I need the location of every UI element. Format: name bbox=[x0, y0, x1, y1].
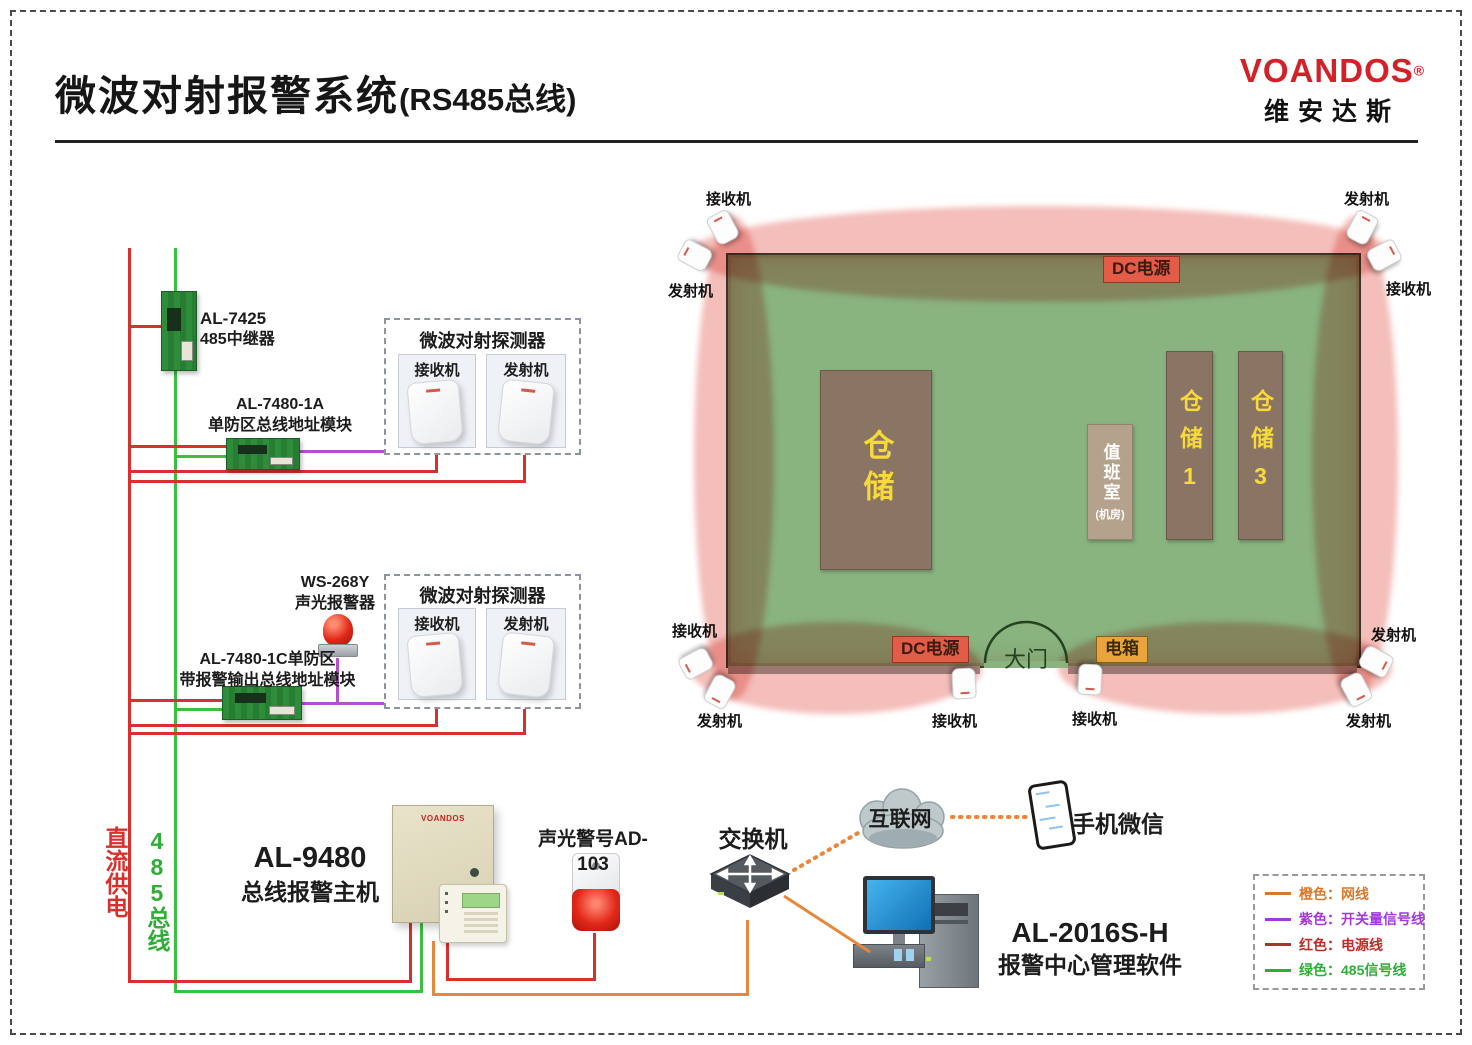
dc-power-bus-label: 直流供电 bbox=[99, 826, 129, 918]
keypad-keys bbox=[464, 912, 498, 934]
brand-name: VOANDOS bbox=[1240, 52, 1414, 89]
module1c-line1: AL-7480-1C单防区 bbox=[175, 650, 360, 671]
wire-red-to-transmitter2 bbox=[130, 732, 526, 735]
detector1-transmitter-label: 发射机 bbox=[487, 359, 565, 380]
host-model: AL-9480 bbox=[240, 840, 380, 878]
label-bl-transmitter: 发射机 bbox=[697, 710, 742, 731]
legend-item-signal: 紫色：开关量信号线 bbox=[1265, 909, 1413, 929]
warehouse-3-label: 仓储3 bbox=[1244, 389, 1278, 503]
dc-power-badge-bottom: DC电源 bbox=[892, 636, 969, 663]
phone-icon bbox=[1027, 779, 1077, 850]
label-br-transmitter-bottom: 发射机 bbox=[1346, 710, 1391, 731]
diagram-page: 微波对射报警系统(RS485总线) VOANDOS® 维安达斯 AL-7425 … bbox=[0, 0, 1472, 1045]
label-br-transmitter-top: 发射机 bbox=[1371, 624, 1416, 645]
legend-box: 橙色：网线 紫色：开关量信号线 红色：电源线 绿色：485信号线 bbox=[1253, 874, 1425, 990]
software-model: AL-2016S-H bbox=[990, 915, 1190, 951]
microwave-transmitter-icon bbox=[497, 631, 555, 698]
module1a-model: AL-7480-1A bbox=[190, 395, 370, 416]
legend-swatch-red bbox=[1265, 943, 1291, 946]
brand-name-cn: 维安达斯 bbox=[1232, 92, 1432, 128]
microwave-receiver-icon bbox=[406, 632, 463, 698]
internet-label: 互联网 bbox=[855, 806, 945, 833]
sensor-icon-gate-left bbox=[951, 667, 977, 699]
dc-power-badge-top: DC电源 bbox=[1103, 256, 1180, 283]
detector2-transmitter-label: 发射机 bbox=[487, 613, 565, 634]
microwave-receiver-icon bbox=[406, 379, 463, 445]
duty-room-label: 值班室 bbox=[1098, 443, 1123, 503]
siren-horn bbox=[572, 889, 620, 931]
page-title: 微波对射报警系统(RS485总线) bbox=[55, 62, 576, 122]
building-duty-room: 值班室 (机房) bbox=[1087, 424, 1133, 540]
wechat-label: 手机微信 bbox=[1072, 810, 1182, 840]
beam-zone-top bbox=[688, 206, 1394, 302]
repeater-label: AL-7425 485中继器 bbox=[200, 308, 310, 351]
header-divider bbox=[55, 140, 1418, 143]
legend-swatch-purple bbox=[1265, 918, 1291, 921]
brand-registered-mark: ® bbox=[1414, 63, 1424, 79]
wire-red-to-receiver1 bbox=[130, 470, 438, 473]
brand-logo: VOANDOS® 维安达斯 bbox=[1232, 52, 1432, 128]
legend-item-485: 绿色：485信号线 bbox=[1265, 960, 1413, 980]
detector2-title: 微波对射探测器 bbox=[386, 582, 579, 608]
repeater-model: AL-7425 bbox=[200, 308, 310, 330]
legend-item-network: 橙色：网线 bbox=[1265, 884, 1413, 904]
legend-label-purple: 紫色：开关量信号线 bbox=[1299, 909, 1425, 929]
rs485-bus-label: 485总线 bbox=[141, 828, 171, 952]
detector2-receiver-label: 接收机 bbox=[399, 613, 475, 634]
legend-swatch-orange bbox=[1265, 892, 1291, 895]
label-tr-receiver: 接收机 bbox=[1386, 278, 1431, 299]
wire-red-to-siren bbox=[446, 978, 596, 981]
module1a-pcb-icon bbox=[226, 438, 300, 470]
gate-label: 大门 bbox=[1004, 642, 1048, 674]
legend-item-power: 红色：电源线 bbox=[1265, 935, 1413, 955]
keypad-lcd bbox=[462, 893, 500, 908]
warehouse-1-label: 仓储1 bbox=[1173, 389, 1207, 503]
sensor-icon-gate-right bbox=[1077, 663, 1103, 695]
software-name: 报警中心管理软件 bbox=[990, 951, 1190, 981]
building-warehouse-label: 仓储 bbox=[854, 429, 899, 511]
wire-green-host-stub bbox=[420, 921, 423, 993]
label-gate-left-receiver: 接收机 bbox=[932, 710, 977, 731]
phone-screen bbox=[1035, 790, 1064, 837]
legend-label-red: 红色：电源线 bbox=[1299, 935, 1383, 955]
module1c-line2: 带报警输出总线地址模块 bbox=[175, 671, 360, 692]
detector1-transmitter-box: 发射机 bbox=[486, 354, 566, 448]
duty-room-sublabel: (机房) bbox=[1095, 506, 1124, 522]
host-name: 总线报警主机 bbox=[240, 878, 380, 908]
detector-box-2: 微波对射探测器 接收机 发射机 bbox=[384, 574, 581, 709]
title-suffix: (RS485总线) bbox=[399, 82, 576, 117]
legend-swatch-green bbox=[1265, 969, 1291, 972]
siren-label: 声光警号AD-103 bbox=[528, 828, 658, 877]
label-tr-transmitter: 发射机 bbox=[1344, 188, 1389, 209]
detector1-title: 微波对射探测器 bbox=[386, 327, 579, 353]
wire-red-to-receiver2 bbox=[130, 724, 438, 727]
keypad-icon bbox=[439, 884, 507, 943]
label-tl-receiver: 接收机 bbox=[706, 188, 751, 209]
detector1-receiver-label: 接收机 bbox=[399, 359, 475, 380]
legend-label-green: 绿色：485信号线 bbox=[1299, 960, 1406, 980]
switch-icon bbox=[708, 852, 792, 931]
wire-orange-switch-stub bbox=[746, 920, 749, 996]
keypad-leds bbox=[445, 892, 448, 918]
sounder-name: 声光报警器 bbox=[275, 594, 395, 615]
detector1-receiver-box: 接收机 bbox=[398, 354, 476, 448]
title-main: 微波对射报警系统 bbox=[55, 73, 399, 119]
computer-monitor bbox=[863, 876, 935, 934]
software-label: AL-2016S-H 报警中心管理软件 bbox=[990, 915, 1190, 981]
detector2-receiver-box: 接收机 bbox=[398, 608, 476, 700]
sounder-label: WS-268Y 声光报警器 bbox=[275, 573, 395, 615]
wire-red-bus-bottom bbox=[128, 980, 412, 983]
building-warehouse-1: 仓储1 bbox=[1166, 351, 1213, 540]
building-warehouse-3: 仓储3 bbox=[1238, 351, 1283, 540]
wire-red-siren-stub bbox=[593, 933, 596, 981]
host-lock-icon bbox=[470, 868, 479, 877]
legend-label-orange: 橙色：网线 bbox=[1299, 884, 1369, 904]
power-box-badge: 电箱 bbox=[1096, 636, 1148, 663]
module1a-name: 单防区总线地址模块 bbox=[190, 416, 370, 437]
host-brand-text: VOANDOS bbox=[393, 814, 493, 823]
label-bl-receiver: 接收机 bbox=[672, 620, 717, 641]
wire-orange-host-to-switch bbox=[432, 993, 749, 996]
microwave-transmitter-icon bbox=[497, 378, 555, 445]
detector-box-1: 微波对射探测器 接收机 发射机 bbox=[384, 318, 581, 455]
monitor-stand bbox=[893, 934, 905, 944]
computer-base bbox=[853, 944, 925, 968]
beacon-dome bbox=[323, 614, 353, 646]
building-warehouse: 仓储 bbox=[820, 370, 932, 570]
module1c-label: AL-7480-1C单防区 带报警输出总线地址模块 bbox=[175, 650, 360, 692]
wire-green-bus-bottom bbox=[174, 990, 423, 993]
sounder-model: WS-268Y bbox=[275, 573, 395, 594]
repeater-pcb-icon bbox=[161, 291, 197, 371]
host-label: AL-9480 总线报警主机 bbox=[240, 840, 380, 908]
switch-label: 交换机 bbox=[708, 825, 798, 855]
wire-red-keypad-stub bbox=[446, 941, 449, 981]
wire-red-host-stub bbox=[409, 921, 412, 983]
label-tl-transmitter: 发射机 bbox=[668, 280, 713, 301]
wire-red-to-transmitter1 bbox=[130, 480, 526, 483]
module1a-label: AL-7480-1A 单防区总线地址模块 bbox=[190, 395, 370, 437]
detector2-transmitter-box: 发射机 bbox=[486, 608, 566, 700]
wire-red-to-module1a bbox=[130, 445, 240, 448]
wire-orange-host-stub bbox=[432, 941, 435, 996]
repeater-name: 485中继器 bbox=[200, 330, 310, 351]
label-gate-right-receiver: 接收机 bbox=[1072, 708, 1117, 729]
